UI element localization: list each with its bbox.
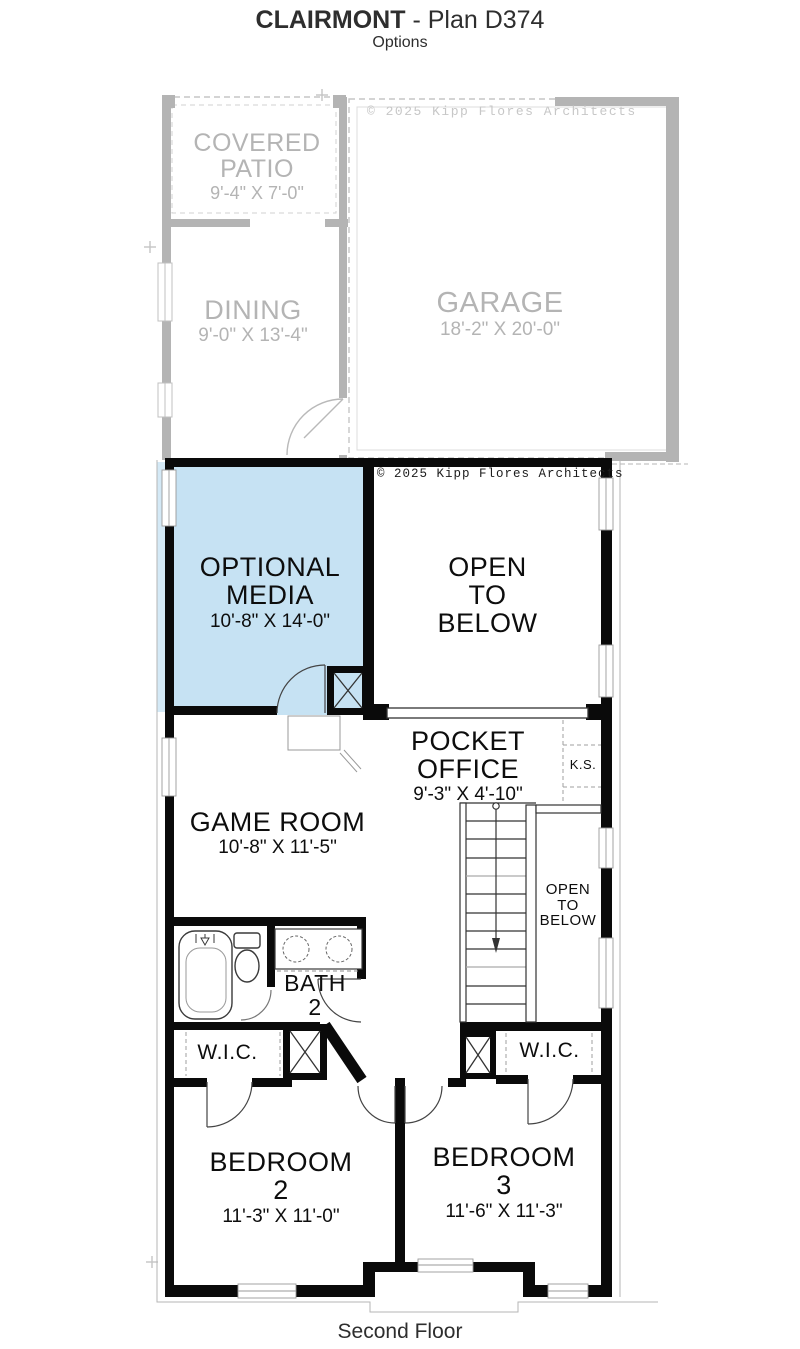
dining-label: DINING 9'-0" X 13'-4" [162,296,344,346]
room-name-line: OPEN [537,882,599,898]
open-to-below-small-label: OPEN TO BELOW [537,882,599,929]
copyright-first-floor: © 2025 Kipp Flores Architects [367,105,629,119]
room-name-line: OFFICE [380,755,556,783]
room-dims: 18'-2" X 20'-0" [390,320,610,340]
garage-label: GARAGE 18'-2" X 20'-0" [390,288,610,340]
room-name-line: 2 [270,996,360,1020]
covered-patio-label: COVERED PATIO 9'-4" X 7'-0" [168,130,346,203]
bath-2-label: BATH 2 [270,972,360,1020]
room-dims: 9'-4" X 7'-0" [168,184,346,203]
page-subtitle: Options [0,34,800,52]
room-name-line: OPTIONAL [170,553,370,581]
railing [387,708,588,718]
page-title: CLAIRMONT - Plan D374 [0,6,800,35]
room-name-line: BATH [270,972,360,996]
floor-label: Second Floor [0,1320,800,1344]
plan-name: CLAIRMONT [256,6,406,34]
room-dims: 11'-3" X 11'-0" [175,1207,387,1227]
room-name-line: COVERED [168,130,346,156]
room-name-line: BEDROOM [175,1148,387,1176]
wic-left-label: W.I.C. [180,1042,275,1064]
open-to-below-large-label: OPEN TO BELOW [395,553,580,637]
copyright-second-floor: © 2025 Kipp Flores Architects [377,468,595,481]
plan-number: - Plan D374 [406,6,545,34]
room-name-line: TO [395,581,580,609]
pocket-office-label: POCKET OFFICE 9'-3" X 4'-10" [380,727,556,805]
room-dims: 9'-3" X 4'-10" [380,785,556,805]
wic-right-label: W.I.C. [502,1040,597,1062]
room-dims: 11'-6" X 11'-3" [400,1202,608,1222]
room-name-line: GARAGE [390,288,610,318]
optional-media-label: OPTIONAL MEDIA 10'-8" X 14'-0" [170,553,370,632]
room-name-line: MEDIA [170,581,370,609]
bedroom-2-label: BEDROOM 2 11'-3" X 11'-0" [175,1148,387,1227]
room-name-line: BELOW [537,913,599,929]
room-name-line: BEDROOM [400,1143,608,1171]
room-name-line: DINING [162,296,344,324]
room-name-line: BELOW [395,609,580,637]
room-name-line: TO [537,898,599,914]
bedroom-3-label: BEDROOM 3 11'-6" X 11'-3" [400,1143,608,1222]
game-room-label: GAME ROOM 10'-8" X 11'-5" [170,808,385,858]
room-name-line: POCKET [380,727,556,755]
kneespace-label: K.S. [566,758,600,772]
floor-plan-sheet: CLAIRMONT - Plan D374 Options © 2025 Kip… [0,0,800,1349]
room-name-line: 2 [175,1176,387,1204]
room-name-line: OPEN [395,553,580,581]
room-dims: 10'-8" X 11'-5" [170,838,385,858]
room-dims: 10'-8" X 14'-0" [170,612,370,632]
room-name-line: 3 [400,1171,608,1199]
room-name-line: GAME ROOM [170,808,385,836]
room-name-line: PATIO [168,156,346,182]
room-dims: 9'-0" X 13'-4" [162,326,344,346]
